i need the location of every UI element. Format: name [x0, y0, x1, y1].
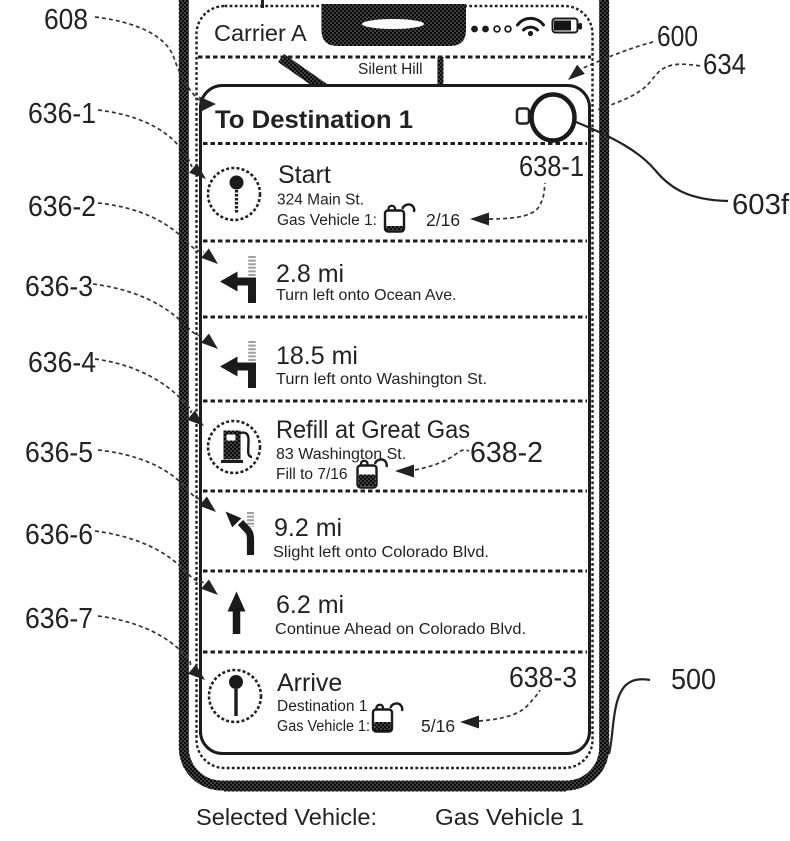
svg-text:636-7: 636-7 [25, 603, 93, 635]
svg-text:9.2 mi: 9.2 mi [274, 514, 342, 542]
svg-text:Fill to 7/16: Fill to 7/16 [276, 466, 348, 483]
svg-text:To Destination 1: To Destination 1 [215, 106, 413, 134]
svg-text:2.8 mi: 2.8 mi [276, 260, 344, 288]
svg-text:636-2: 636-2 [28, 191, 96, 223]
svg-text:6.2 mi: 6.2 mi [276, 591, 344, 619]
svg-text:Turn left onto Washington St.: Turn left onto Washington St. [276, 371, 487, 388]
svg-text:638-3: 638-3 [509, 662, 577, 694]
svg-text:Gas Vehicle 1:: Gas Vehicle 1: [277, 212, 377, 229]
svg-text:600: 600 [657, 21, 698, 53]
svg-text:Destination 1: Destination 1 [277, 698, 367, 715]
svg-text:636-5: 636-5 [25, 437, 93, 469]
svg-text:Arrive: Arrive [277, 669, 342, 697]
svg-text:608: 608 [44, 4, 88, 36]
svg-text:Turn left onto Ocean Ave.: Turn left onto Ocean Ave. [276, 287, 457, 304]
svg-text:Slight left onto Colorado Blvd: Slight left onto Colorado Blvd. [273, 544, 489, 561]
svg-text:83 Washington St.: 83 Washington St. [276, 446, 406, 463]
svg-text:Gas Vehicle 1:: Gas Vehicle 1: [277, 718, 370, 735]
svg-text:Gas Vehicle 1: Gas Vehicle 1 [435, 804, 584, 830]
svg-text:603f: 603f [732, 189, 790, 221]
svg-text:500: 500 [671, 664, 716, 696]
svg-text:636-1: 636-1 [28, 98, 96, 130]
svg-text:638-2: 638-2 [470, 437, 543, 469]
svg-text:18.5 mi: 18.5 mi [276, 342, 358, 370]
svg-text:5/16: 5/16 [421, 716, 455, 736]
svg-text:Refill at Great Gas: Refill at Great Gas [276, 416, 470, 444]
svg-text:Start: Start [278, 161, 331, 189]
svg-text:Selected Vehicle:: Selected Vehicle: [196, 804, 377, 830]
svg-text:2/16: 2/16 [426, 210, 460, 230]
svg-text:324 Main St.: 324 Main St. [277, 192, 364, 209]
svg-text:Silent Hill: Silent Hill [358, 61, 423, 78]
svg-text:Continue Ahead on Colorado Blv: Continue Ahead on Colorado Blvd. [275, 621, 526, 638]
svg-text:638-1: 638-1 [519, 151, 584, 183]
svg-text:634: 634 [703, 49, 746, 81]
svg-text:Carrier A: Carrier A [214, 20, 307, 46]
svg-text:636-3: 636-3 [25, 271, 93, 303]
svg-text:636-6: 636-6 [25, 519, 93, 551]
svg-text:636-4: 636-4 [28, 347, 96, 379]
